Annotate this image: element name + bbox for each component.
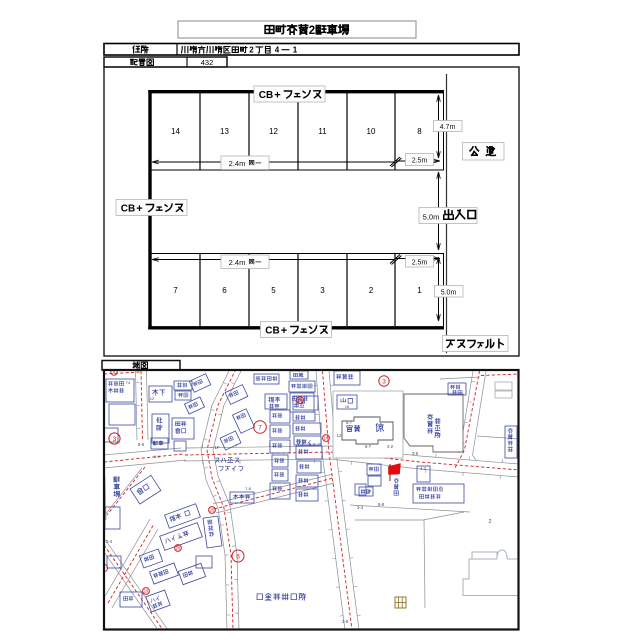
svg-text:29: 29 xyxy=(144,589,149,594)
svg-text:6: 6 xyxy=(222,286,227,295)
svg-text:16: 16 xyxy=(345,404,350,409)
svg-text:14: 14 xyxy=(171,127,180,136)
svg-text:4: 4 xyxy=(275,45,280,54)
svg-text:5-7: 5-7 xyxy=(365,444,372,449)
svg-text:12: 12 xyxy=(150,396,155,401)
svg-text:2-4: 2-4 xyxy=(106,539,113,544)
svg-text:7: 7 xyxy=(258,424,262,431)
svg-text:+: + xyxy=(274,89,280,101)
svg-text:4-2: 4-2 xyxy=(387,444,394,449)
svg-text:4.7m: 4.7m xyxy=(440,124,456,131)
svg-text:2: 2 xyxy=(309,25,315,37)
svg-text:28: 28 xyxy=(176,546,181,551)
svg-text:3: 3 xyxy=(382,378,386,385)
svg-text:5: 5 xyxy=(271,286,276,295)
svg-text:432: 432 xyxy=(201,58,214,67)
svg-text:1: 1 xyxy=(417,286,422,295)
svg-text:5-2: 5-2 xyxy=(309,442,316,447)
svg-text:8-8: 8-8 xyxy=(378,502,385,507)
svg-text:5-7: 5-7 xyxy=(346,420,353,425)
svg-text:8-6: 8-6 xyxy=(138,442,145,447)
svg-text:3: 3 xyxy=(113,436,117,443)
svg-text:2.5m: 2.5m xyxy=(412,260,428,267)
svg-text:1F: 1F xyxy=(214,445,220,450)
svg-text:1: 1 xyxy=(293,45,298,54)
svg-text:3: 3 xyxy=(320,286,325,295)
svg-text:10: 10 xyxy=(324,436,329,441)
svg-text:+: + xyxy=(281,325,287,337)
svg-text:CB: CB xyxy=(121,204,135,215)
svg-text:11: 11 xyxy=(318,127,327,136)
svg-text:CB: CB xyxy=(259,90,273,101)
svg-text:2.4m: 2.4m xyxy=(229,159,246,168)
svg-text:12: 12 xyxy=(269,127,278,136)
svg-text:8: 8 xyxy=(417,127,422,136)
svg-text:25: 25 xyxy=(210,508,215,513)
svg-text:7-8: 7-8 xyxy=(245,486,252,491)
svg-text:7: 7 xyxy=(173,286,178,295)
svg-text:12: 12 xyxy=(336,433,342,438)
svg-text:+: + xyxy=(136,203,142,215)
svg-text:5,0m: 5,0m xyxy=(423,213,440,222)
svg-text:2: 2 xyxy=(369,286,374,295)
svg-text:3-8: 3-8 xyxy=(342,619,349,624)
svg-text:3-6: 3-6 xyxy=(412,451,419,456)
svg-text:13: 13 xyxy=(220,127,229,136)
svg-text:2: 2 xyxy=(249,45,254,54)
svg-text:3-4: 3-4 xyxy=(357,505,364,510)
svg-text:CB: CB xyxy=(265,326,279,337)
svg-text:5.0m: 5.0m xyxy=(441,290,457,297)
svg-text:10: 10 xyxy=(367,127,376,136)
svg-text:2: 2 xyxy=(489,519,492,525)
svg-text:4-2: 4-2 xyxy=(420,466,427,471)
svg-text:8-9: 8-9 xyxy=(154,454,161,459)
svg-text:2.4m: 2.4m xyxy=(229,258,246,267)
svg-text:74: 74 xyxy=(126,380,131,385)
svg-text:6: 6 xyxy=(236,553,240,560)
svg-text:2.5m: 2.5m xyxy=(412,158,428,165)
